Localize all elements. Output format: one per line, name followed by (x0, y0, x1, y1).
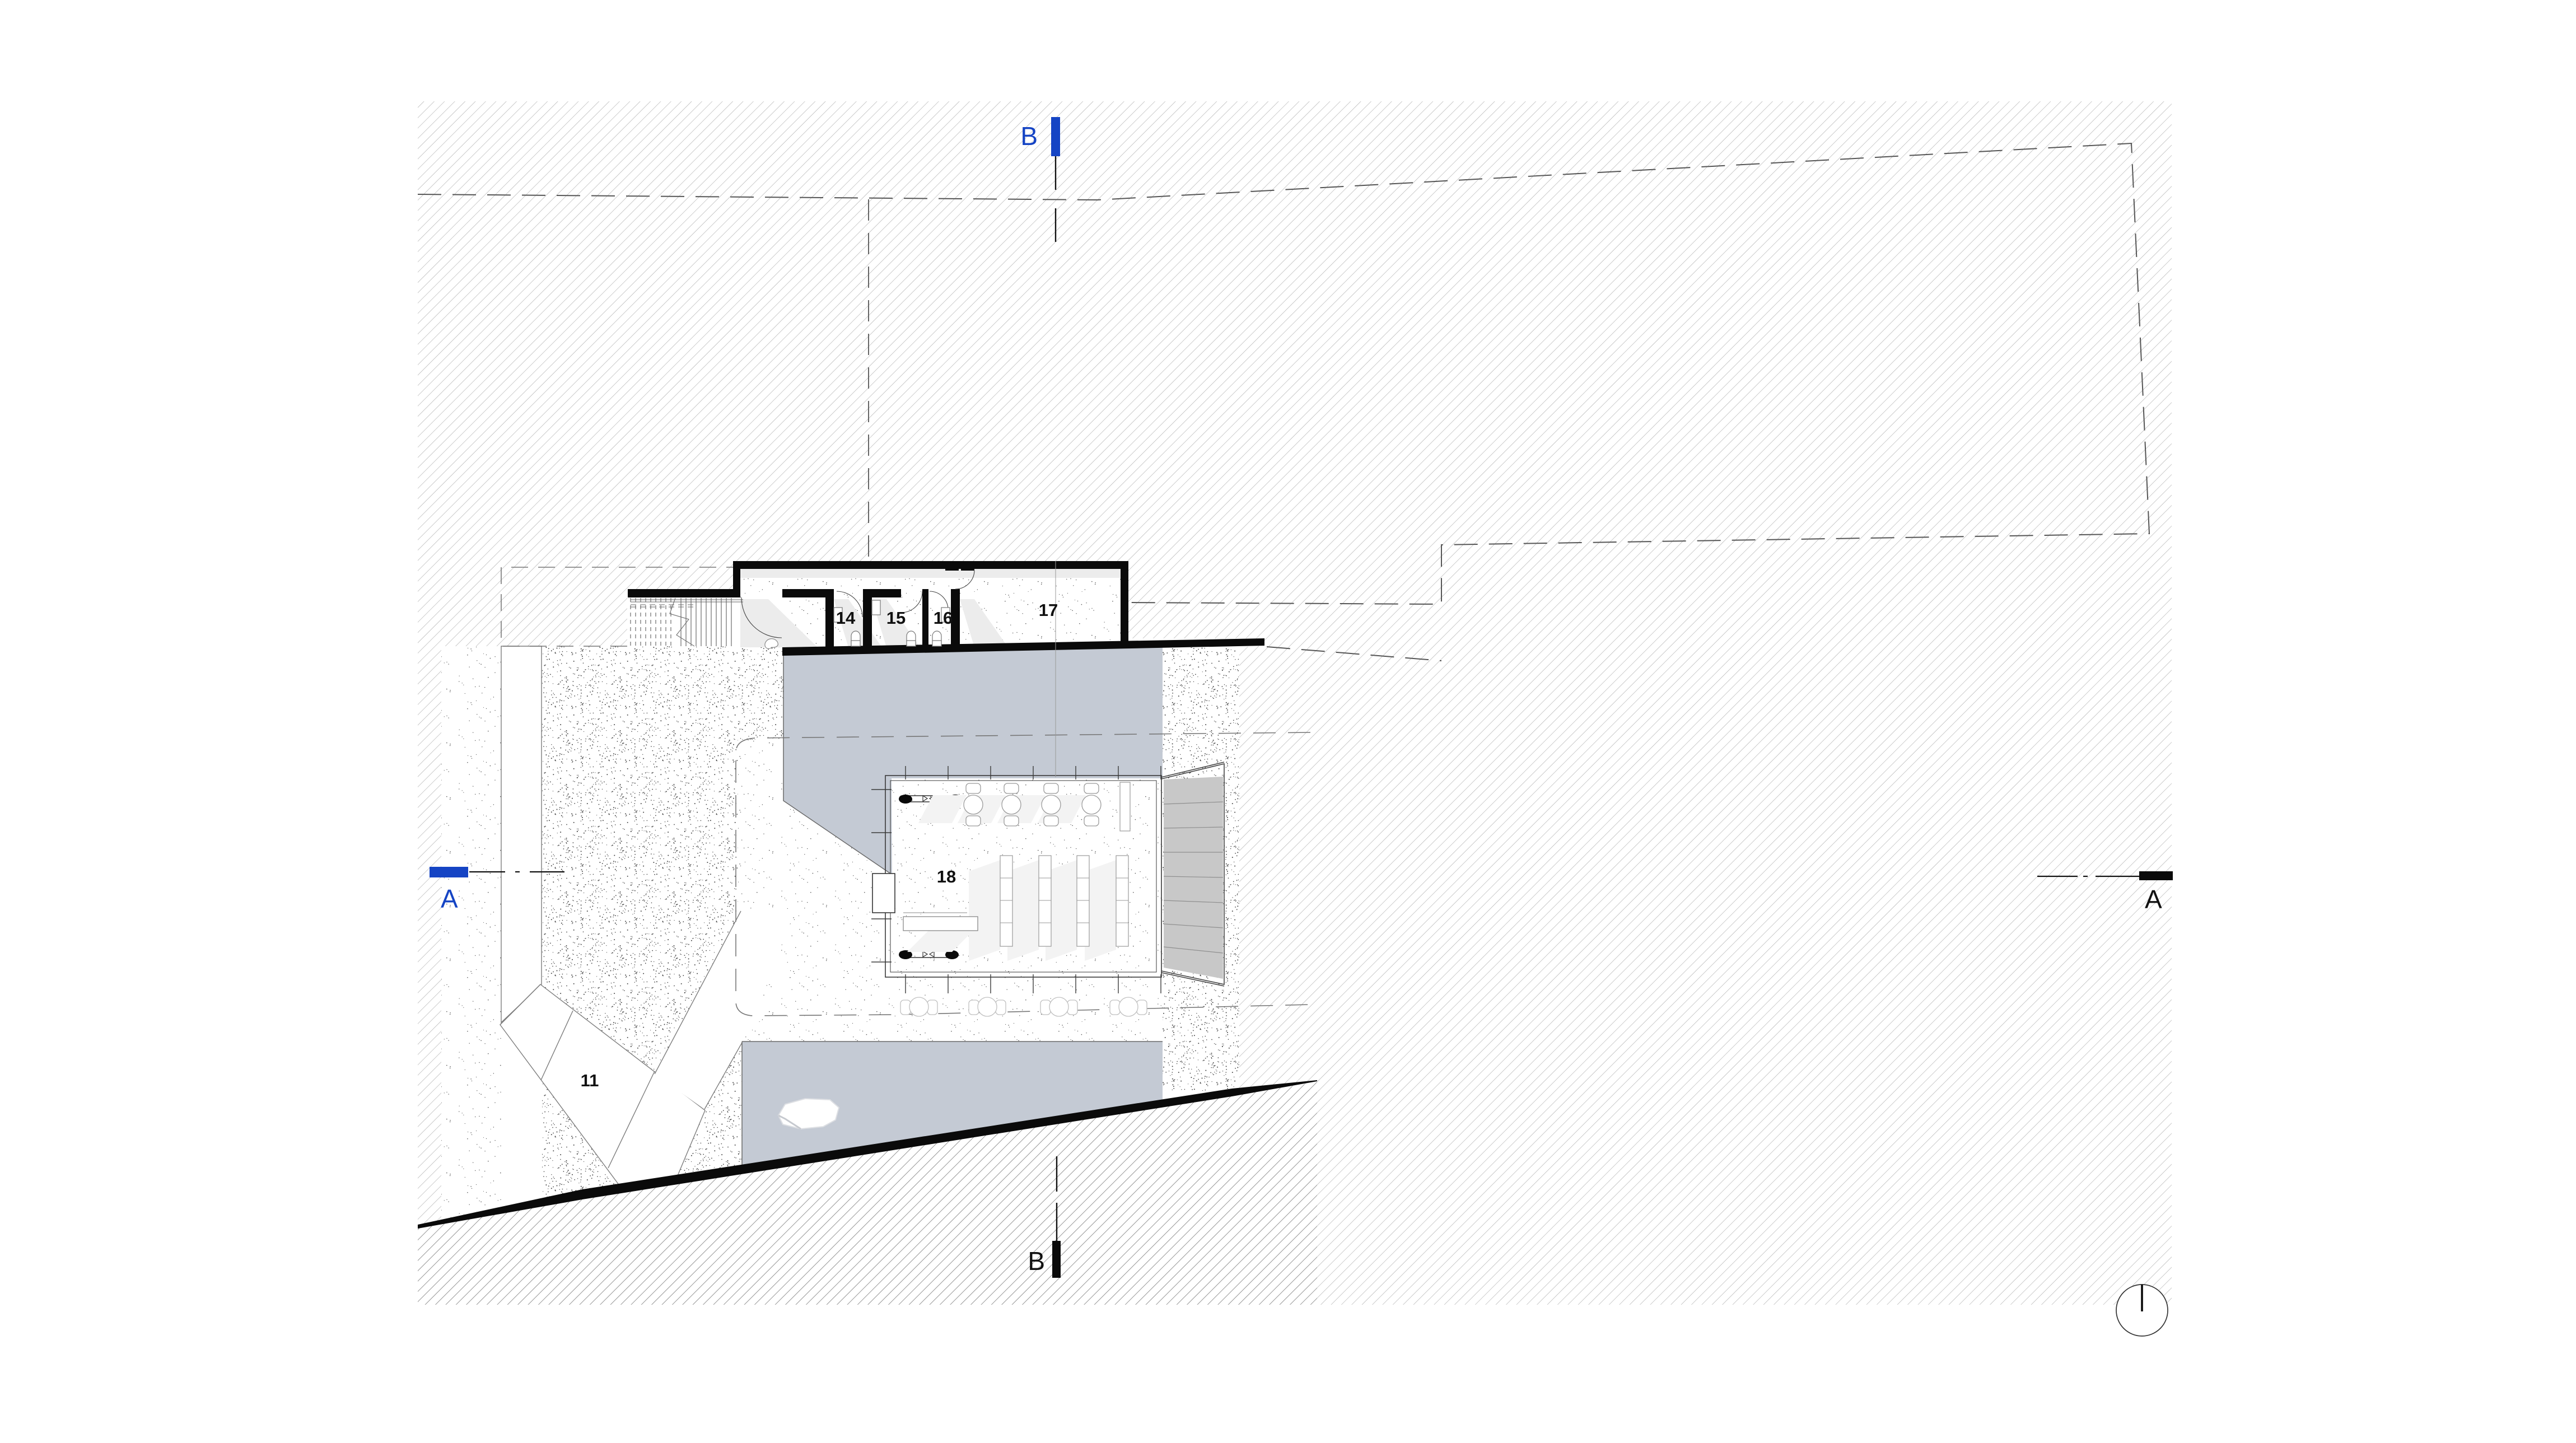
svg-text:18: 18 (937, 867, 956, 886)
svg-text:A: A (441, 884, 458, 913)
svg-text:17: 17 (1039, 600, 1058, 620)
svg-text:15: 15 (886, 608, 906, 628)
svg-text:B: B (1028, 1246, 1045, 1276)
svg-text:A: A (2145, 885, 2162, 914)
svg-text:11: 11 (581, 1071, 599, 1090)
svg-text:14: 14 (836, 608, 856, 628)
svg-text:B: B (1020, 122, 1038, 151)
svg-text:16: 16 (934, 608, 953, 628)
